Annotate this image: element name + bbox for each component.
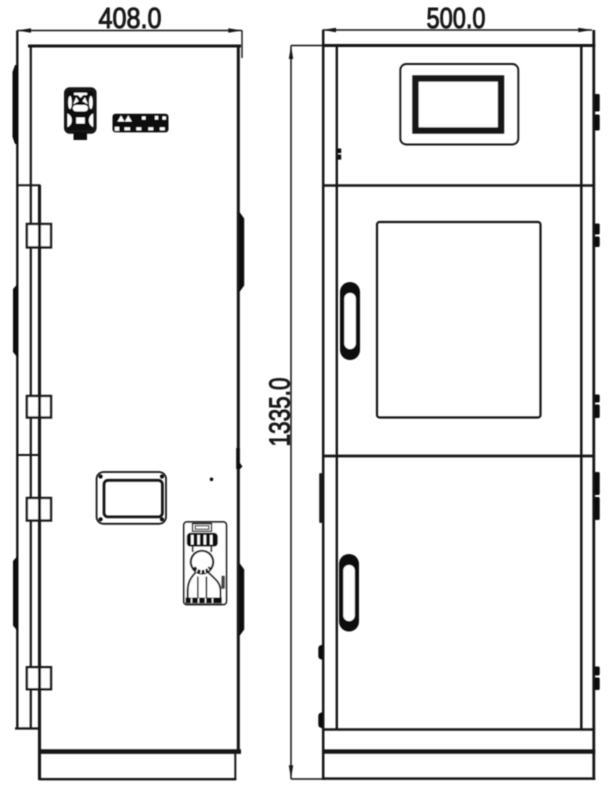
svg-text:408.0: 408.0 (99, 3, 162, 35)
svg-text:1335.0: 1335.0 (265, 378, 297, 447)
svg-text:500.0: 500.0 (427, 3, 486, 35)
